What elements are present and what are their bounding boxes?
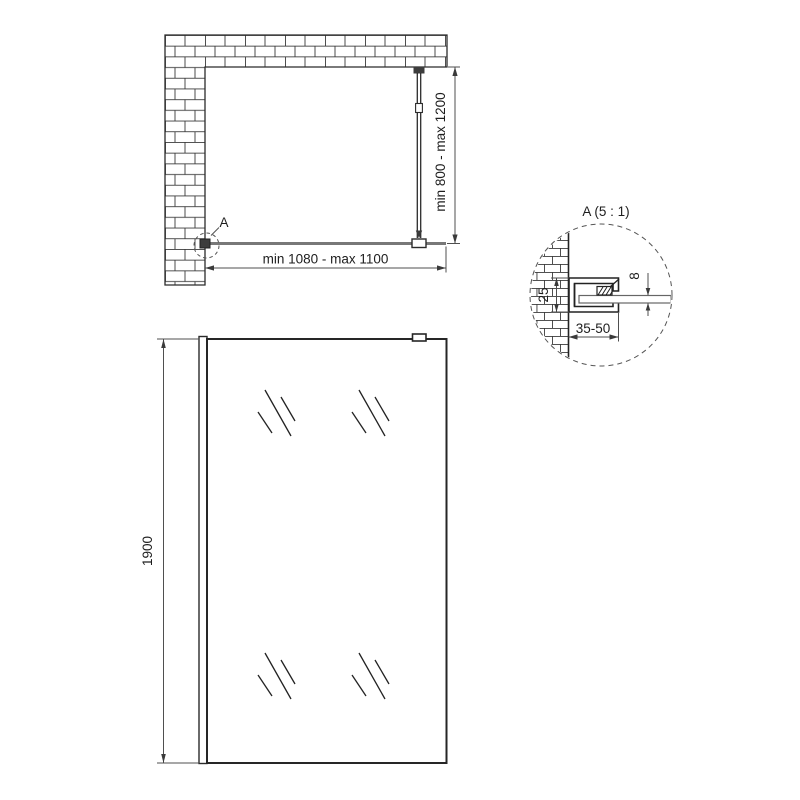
support-bar-connector bbox=[416, 104, 423, 113]
dim-bar-label: min 800 - max 1200 bbox=[433, 92, 448, 211]
dim-height: 1900 bbox=[140, 339, 199, 763]
glass-panel-section bbox=[579, 296, 671, 304]
detail-callout-leader bbox=[211, 228, 219, 236]
detail-view-title: A (5 : 1) bbox=[582, 204, 629, 219]
dim-wall-clearance: 35-50 bbox=[569, 313, 619, 342]
dim-glass-thickness-label: 8 bbox=[627, 272, 642, 280]
dim-profile-height-label: 25 bbox=[536, 287, 551, 302]
wall-profile-front bbox=[199, 337, 207, 764]
support-bracket-front bbox=[413, 334, 427, 341]
support-bar-glass-bracket bbox=[412, 239, 426, 248]
wall-profile-plan bbox=[200, 239, 210, 248]
support-bar-plan bbox=[412, 67, 426, 248]
dim-width: min 1080 - max 1100 bbox=[205, 247, 446, 273]
dim-glass-thickness: 8 bbox=[627, 272, 650, 316]
dim-height-label: 1900 bbox=[140, 536, 155, 566]
detail-view: A (5 : 1) bbox=[530, 204, 672, 367]
dim-width-label: min 1080 - max 1100 bbox=[263, 252, 389, 267]
detail-callout-label: A bbox=[219, 215, 228, 230]
plan-view: A min 1080 - max 1100 min 800 - max 1200 bbox=[165, 35, 460, 285]
dim-wall-clearance-label: 35-50 bbox=[576, 321, 611, 336]
front-view: 1900 bbox=[140, 334, 447, 764]
technical-drawing-page: A min 1080 - max 1100 min 800 - max 1200… bbox=[0, 0, 800, 800]
support-bar-wall-mount bbox=[414, 67, 425, 74]
shower-screen-drawing: A min 1080 - max 1100 min 800 - max 1200… bbox=[0, 0, 800, 800]
dim-bar-length: min 800 - max 1200 bbox=[433, 67, 460, 244]
glass-panel-front bbox=[207, 339, 447, 763]
